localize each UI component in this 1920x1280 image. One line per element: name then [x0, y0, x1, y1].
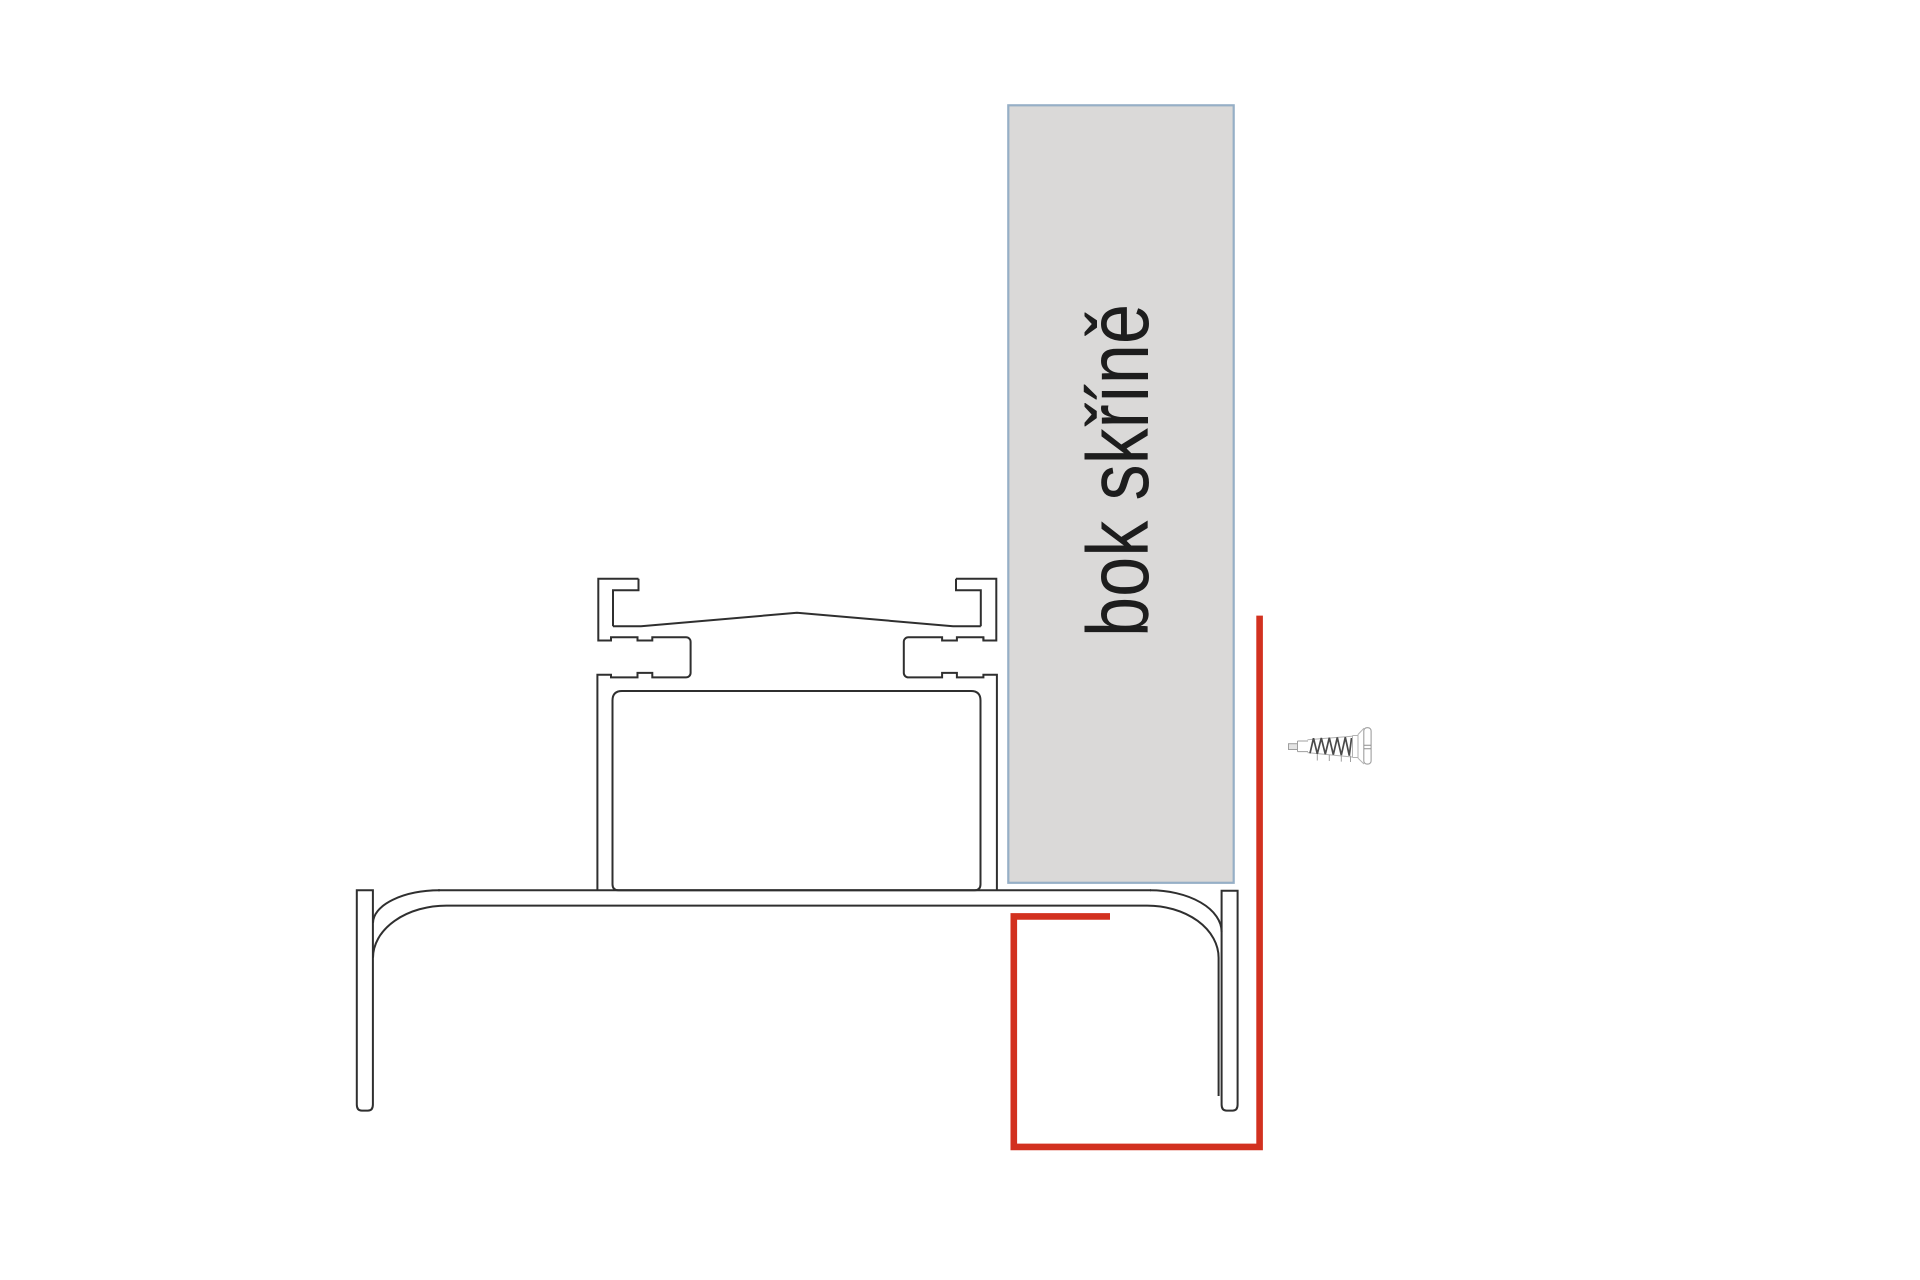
svg-text:bok skříně: bok skříně	[1070, 304, 1167, 637]
